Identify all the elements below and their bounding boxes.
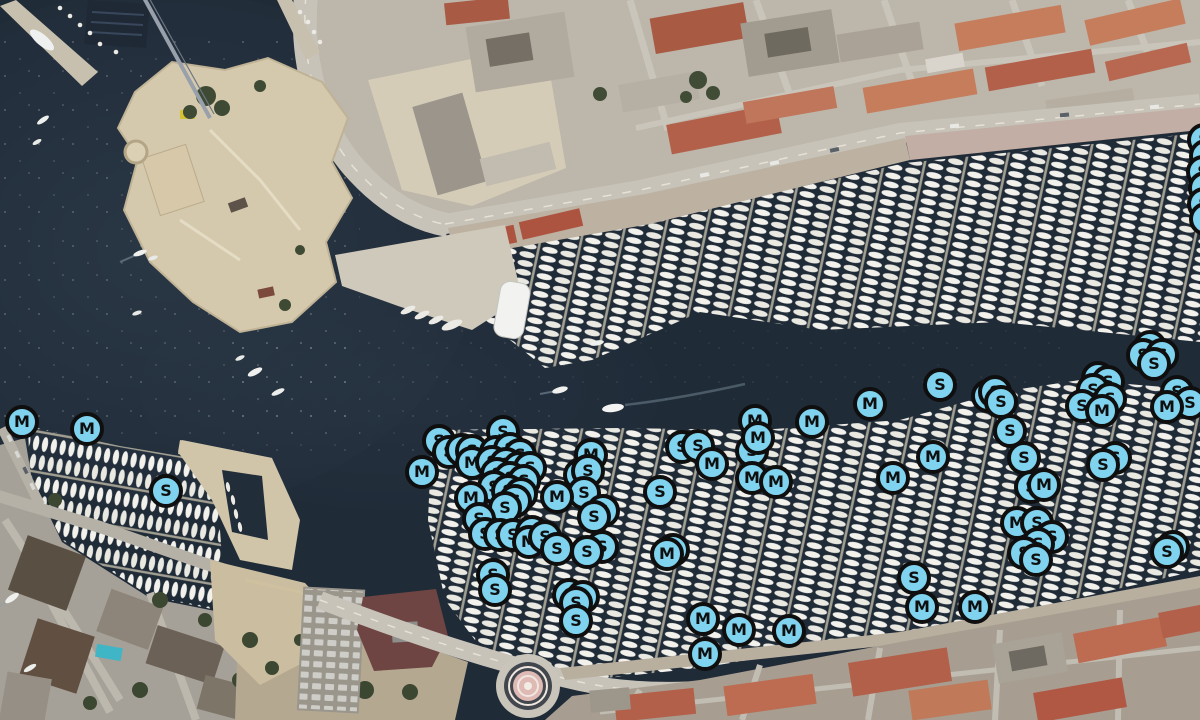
map-marker-m[interactable]: M (759, 465, 793, 499)
map-marker-m[interactable]: M (795, 405, 829, 439)
map-marker-s[interactable]: S (570, 535, 604, 569)
map-marker-m[interactable]: M (722, 613, 756, 647)
map-marker-s[interactable]: S (478, 573, 512, 607)
map-marker-m[interactable]: M (540, 480, 574, 514)
map-marker-s[interactable]: S (1150, 535, 1184, 569)
map-marker-s[interactable]: S (923, 368, 957, 402)
map-marker-m[interactable]: M (686, 602, 720, 636)
map-marker-m[interactable]: M (905, 590, 939, 624)
map-viewport[interactable]: MMSSSSSSMMSSSSSSSSSSSSSSSMSMSSSSSMSSSSMS… (0, 0, 1200, 720)
map-marker-s[interactable]: S (577, 500, 611, 534)
map-marker-m[interactable]: M (1085, 394, 1119, 428)
map-marker-m[interactable]: M (405, 455, 439, 489)
map-marker-s[interactable]: S (540, 532, 574, 566)
map-marker-m[interactable]: M (1150, 390, 1184, 424)
map-marker-m[interactable]: M (772, 614, 806, 648)
map-marker-m[interactable]: M (5, 405, 39, 439)
map-marker-m[interactable]: M (1027, 468, 1061, 502)
map-marker-m[interactable]: M (650, 537, 684, 571)
map-marker-s[interactable]: S (559, 604, 593, 638)
map-marker-s[interactable]: S (1137, 347, 1171, 381)
map-marker-s[interactable]: S (149, 474, 183, 508)
map-marker-m[interactable]: M (958, 590, 992, 624)
map-marker-m[interactable]: M (853, 387, 887, 421)
map-marker-m[interactable]: M (688, 637, 722, 671)
map-marker-m[interactable]: M (741, 421, 775, 455)
marker-layer: MMSSSSSSMMSSSSSSSSSSSSSSSMSMSSSSSMSSSSMS… (0, 0, 1200, 720)
map-marker-s[interactable]: S (643, 475, 677, 509)
map-marker-s[interactable]: S (1086, 448, 1120, 482)
map-marker-m[interactable]: M (695, 447, 729, 481)
map-marker-s[interactable]: S (1019, 543, 1053, 577)
map-marker-m[interactable]: M (876, 461, 910, 495)
map-marker-m[interactable]: M (70, 412, 104, 446)
map-marker-m[interactable]: M (916, 440, 950, 474)
